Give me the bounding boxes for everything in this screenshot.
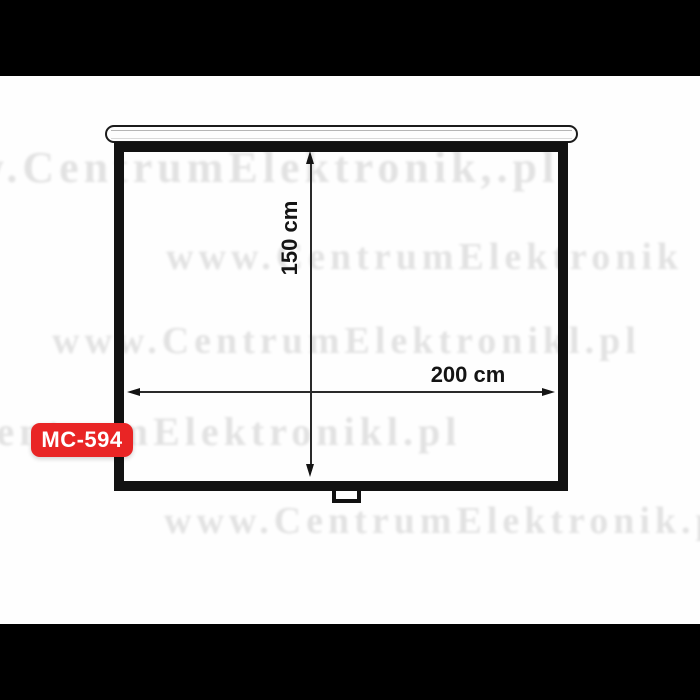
arrowhead-right-icon: [542, 388, 555, 396]
bottom-black-band: [0, 624, 700, 700]
arrowhead-down-icon: [306, 464, 314, 477]
arrowhead-up-icon: [306, 151, 314, 164]
watermark-text: www.CentrumElektronik.pl: [164, 502, 700, 540]
height-dimension-label: 150 cm: [279, 198, 301, 278]
product-image: w.CentrumElektronik,.plwww.CentrumElektr…: [0, 0, 700, 700]
model-badge: MC-594: [31, 423, 133, 457]
screen-roller-casing: [105, 125, 578, 143]
vertical-dimension-line: [310, 158, 312, 471]
screen-frame: [114, 142, 568, 491]
horizontal-dimension-line: [132, 391, 548, 393]
width-dimension-label: 200 cm: [428, 364, 508, 386]
arrowhead-left-icon: [127, 388, 140, 396]
top-black-band: [0, 0, 700, 76]
